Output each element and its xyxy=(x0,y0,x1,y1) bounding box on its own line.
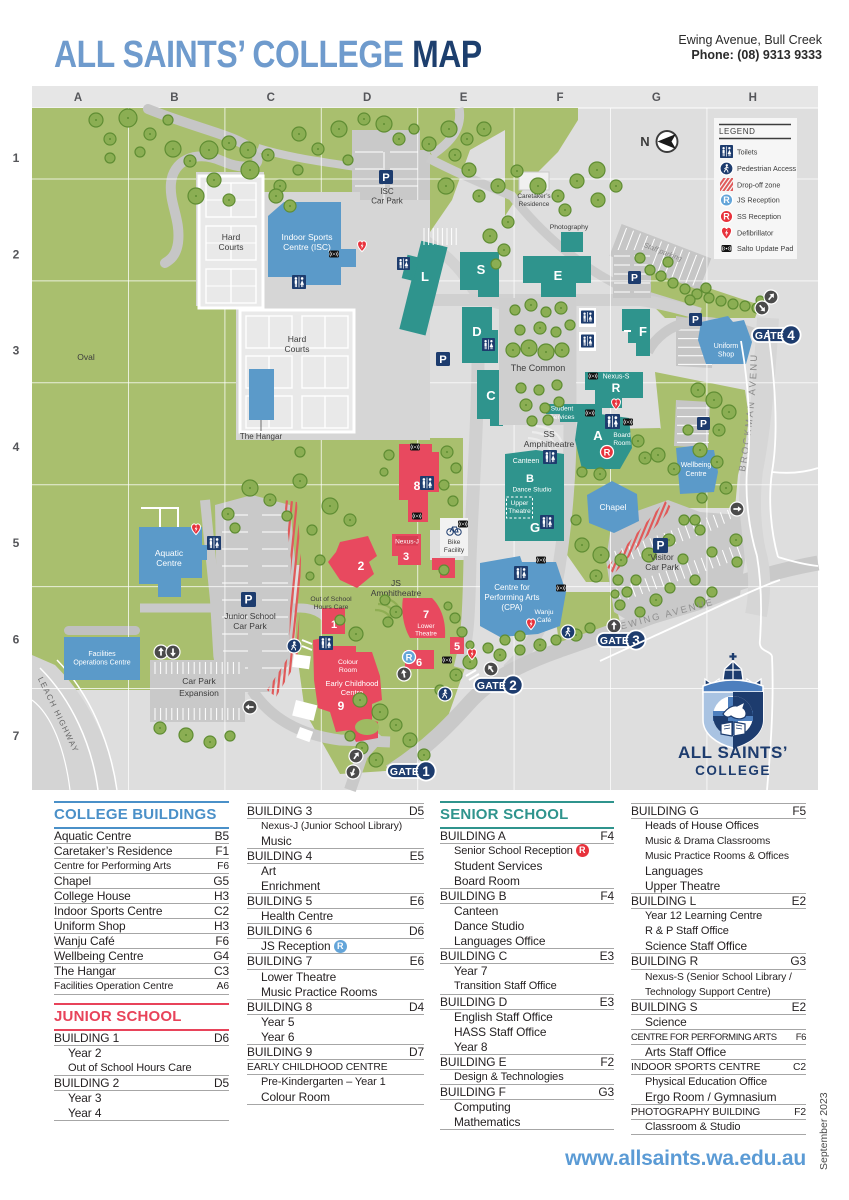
svg-text:JS: JS xyxy=(391,578,401,588)
svg-text:Centre for: Centre for xyxy=(494,583,530,592)
svg-text:Centre (ISC): Centre (ISC) xyxy=(283,242,331,252)
svg-text:7: 7 xyxy=(423,609,429,621)
svg-text:P: P xyxy=(700,419,707,430)
svg-text:Café: Café xyxy=(537,617,552,624)
svg-text:Courts: Courts xyxy=(284,344,309,354)
svg-text:E: E xyxy=(554,268,563,283)
svg-text:GATE: GATE xyxy=(477,680,506,692)
svg-text:Bike: Bike xyxy=(448,539,461,546)
svg-text:4: 4 xyxy=(787,328,795,343)
svg-text:3: 3 xyxy=(13,344,20,358)
svg-text:Visitor: Visitor xyxy=(650,552,674,562)
svg-text:2: 2 xyxy=(13,247,20,261)
svg-text:Room: Room xyxy=(339,667,357,674)
svg-text:Hard: Hard xyxy=(288,334,307,344)
svg-text:Nexus-S: Nexus-S xyxy=(603,374,630,381)
svg-text:R: R xyxy=(612,381,621,395)
svg-text:Room: Room xyxy=(613,440,630,447)
svg-text:5: 5 xyxy=(13,536,20,550)
svg-text:Car Park: Car Park xyxy=(645,562,679,572)
svg-text:D: D xyxy=(363,92,371,104)
svg-text:SS: SS xyxy=(543,429,555,439)
svg-text:2: 2 xyxy=(509,678,517,693)
svg-text:3: 3 xyxy=(403,551,409,563)
svg-text:Centre: Centre xyxy=(685,471,706,478)
svg-text:R: R xyxy=(723,212,730,222)
svg-text:Centre: Centre xyxy=(156,558,182,568)
svg-text:B: B xyxy=(526,473,534,485)
svg-text:Salto Update Pad: Salto Update Pad xyxy=(737,244,793,253)
svg-text:P: P xyxy=(692,315,699,326)
svg-text:LEGEND: LEGEND xyxy=(719,127,756,136)
svg-text:5: 5 xyxy=(454,641,460,653)
svg-text:GATE: GATE xyxy=(600,635,629,647)
svg-text:E: E xyxy=(460,92,468,104)
svg-text:Chapel: Chapel xyxy=(600,502,627,512)
svg-text:ISC: ISC xyxy=(380,187,394,196)
svg-text:Courts: Courts xyxy=(218,242,243,252)
svg-text:Facilities: Facilities xyxy=(88,651,116,658)
svg-text:Oval: Oval xyxy=(77,352,95,362)
svg-text:Wanju: Wanju xyxy=(534,609,553,616)
svg-text:R: R xyxy=(406,651,413,662)
svg-text:Theatre: Theatre xyxy=(415,631,437,638)
svg-text:Aquatic: Aquatic xyxy=(155,548,184,558)
svg-text:Amphitheatre: Amphitheatre xyxy=(524,439,575,449)
svg-text:4: 4 xyxy=(13,440,20,454)
svg-text:Drop-off zone: Drop-off zone xyxy=(737,181,780,190)
svg-text:Junior School: Junior School xyxy=(224,611,276,621)
svg-text:8: 8 xyxy=(414,479,421,493)
svg-text:D: D xyxy=(472,324,481,339)
svg-text:Wellbeing: Wellbeing xyxy=(681,462,712,469)
svg-text:C: C xyxy=(486,388,496,403)
svg-text:A: A xyxy=(593,428,603,443)
svg-text:SS Reception: SS Reception xyxy=(737,212,781,221)
svg-text:Caretaker’s: Caretaker’s xyxy=(517,193,551,200)
svg-text:N: N xyxy=(640,134,649,149)
svg-text:GATE: GATE xyxy=(390,766,419,778)
svg-text:Upper: Upper xyxy=(511,500,530,507)
svg-text:Shop: Shop xyxy=(718,352,734,359)
svg-text:Hard: Hard xyxy=(222,232,241,242)
svg-text:Uniform: Uniform xyxy=(714,343,739,350)
svg-text:Indoor Sports: Indoor Sports xyxy=(281,232,332,242)
svg-text:ALL SAINTS’: ALL SAINTS’ xyxy=(678,743,788,762)
svg-text:The Hangar: The Hangar xyxy=(240,432,283,441)
svg-text:1: 1 xyxy=(13,151,20,165)
svg-text:6: 6 xyxy=(416,657,422,669)
svg-text:H: H xyxy=(749,92,757,104)
svg-text:P: P xyxy=(382,172,390,184)
svg-text:1: 1 xyxy=(422,764,430,779)
svg-text:P: P xyxy=(656,539,664,553)
svg-text:B: B xyxy=(170,92,178,104)
svg-text:(CPA): (CPA) xyxy=(501,603,523,612)
svg-text:9: 9 xyxy=(338,699,345,713)
svg-text:P: P xyxy=(439,354,447,366)
svg-text:R: R xyxy=(604,446,611,457)
svg-text:Canteen: Canteen xyxy=(513,458,540,465)
svg-text:Operations Centre: Operations Centre xyxy=(73,660,130,667)
svg-text:Dance Studio: Dance Studio xyxy=(512,487,551,494)
svg-text:F: F xyxy=(639,324,647,339)
svg-text:P: P xyxy=(244,593,252,607)
svg-text:Car Park: Car Park xyxy=(233,621,267,631)
svg-text:Residence: Residence xyxy=(519,201,550,208)
svg-text:L: L xyxy=(421,269,429,284)
svg-text:Early Childhood: Early Childhood xyxy=(326,679,379,688)
svg-text:S: S xyxy=(477,262,486,277)
svg-text:Theatre: Theatre xyxy=(508,508,531,515)
svg-text:Toilets: Toilets xyxy=(737,148,758,157)
svg-text:Expansion: Expansion xyxy=(179,688,219,698)
svg-text:Car Park: Car Park xyxy=(371,197,404,206)
svg-text:Facility: Facility xyxy=(444,547,465,554)
svg-text:Out of School: Out of School xyxy=(310,596,352,603)
svg-text:G: G xyxy=(652,92,661,104)
svg-text:R: R xyxy=(723,195,730,205)
svg-text:Defibrillator: Defibrillator xyxy=(737,229,774,238)
svg-text:Amphitheatre: Amphitheatre xyxy=(371,588,422,598)
svg-text:Performing Arts: Performing Arts xyxy=(484,593,539,602)
svg-text:Lower: Lower xyxy=(417,623,434,630)
svg-text:A: A xyxy=(74,92,82,104)
svg-text:2: 2 xyxy=(358,559,365,573)
svg-text:COLLEGE: COLLEGE xyxy=(695,763,771,778)
svg-text:Board: Board xyxy=(613,432,631,439)
svg-text:P: P xyxy=(631,273,638,284)
svg-text:F: F xyxy=(556,92,563,104)
svg-text:Photography: Photography xyxy=(550,224,589,231)
svg-text:Hours Care: Hours Care xyxy=(314,604,349,611)
svg-text:JS Reception: JS Reception xyxy=(737,196,780,205)
svg-text:G: G xyxy=(530,520,540,535)
svg-text:Pedestrian Access: Pedestrian Access xyxy=(737,164,797,173)
svg-text:6: 6 xyxy=(13,633,20,647)
svg-text:Nexus-J: Nexus-J xyxy=(395,539,419,546)
svg-text:7: 7 xyxy=(13,729,20,743)
svg-text:The Common: The Common xyxy=(511,363,566,373)
svg-text:Colour: Colour xyxy=(338,659,359,666)
svg-text:C: C xyxy=(267,92,275,104)
svg-text:Car Park: Car Park xyxy=(182,676,216,686)
